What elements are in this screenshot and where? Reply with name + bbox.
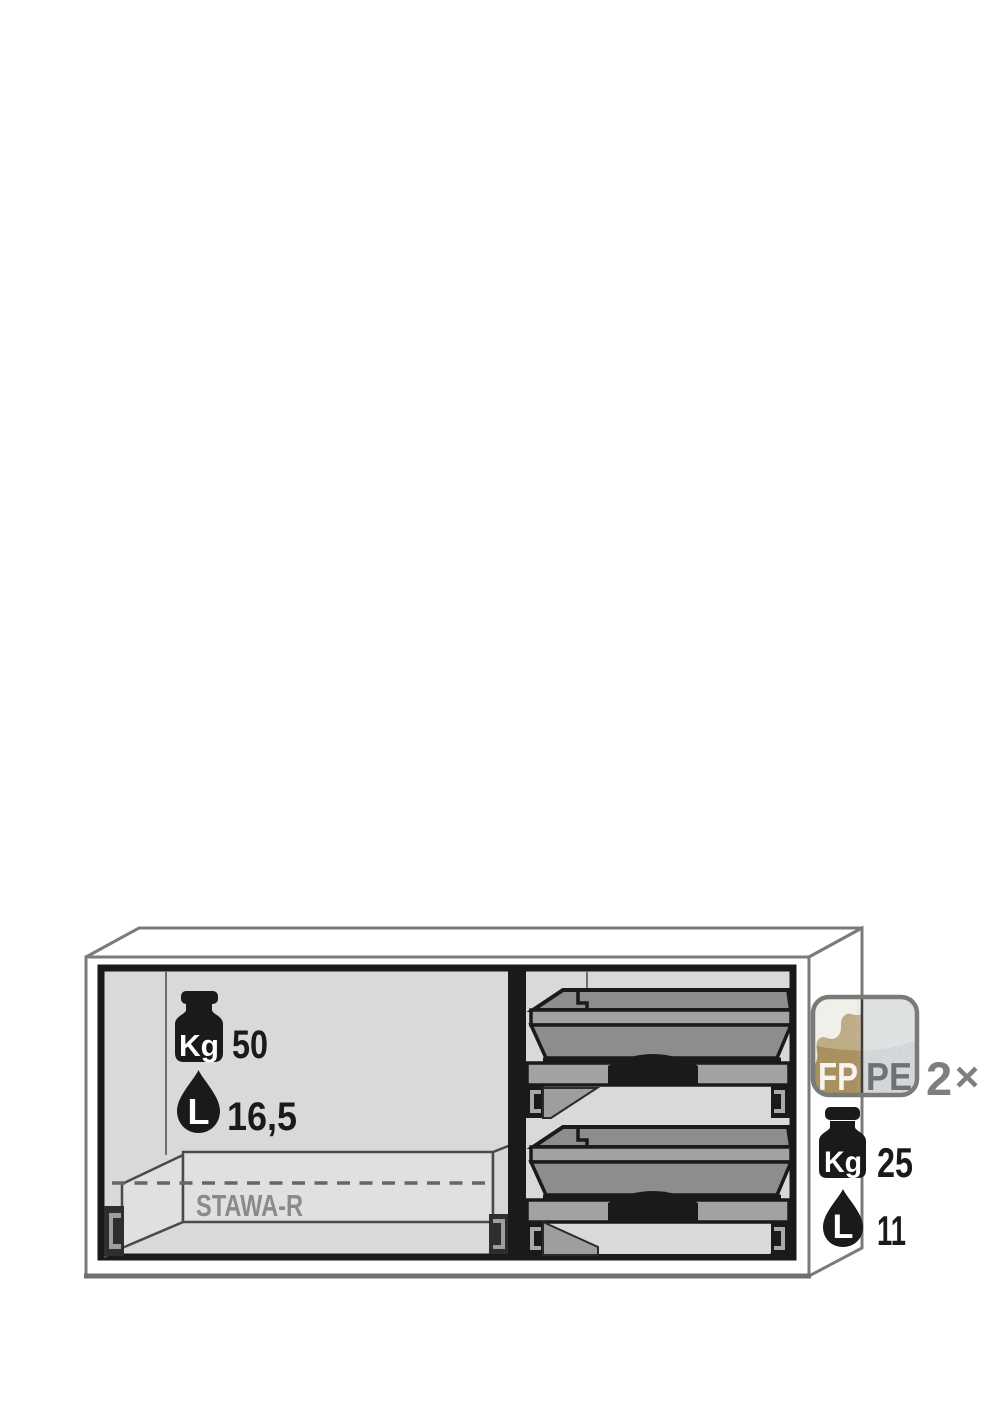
cabinet-top-face xyxy=(86,928,862,957)
badge-gloss xyxy=(813,997,917,1050)
badge-quantity: 2 xyxy=(926,1052,952,1105)
slide-bracket-left xyxy=(104,1206,124,1256)
weight-icon: Kg xyxy=(175,991,223,1063)
volume-value: 16,5 xyxy=(227,1095,297,1139)
fp-label: FP xyxy=(818,1056,858,1099)
drawer-drop-icon-label: L xyxy=(833,1208,854,1246)
drawer-max-load-value: 25 xyxy=(877,1139,913,1186)
fp-pe-badge: FP PE xyxy=(813,997,917,1099)
drop-icon-label: L xyxy=(188,1091,210,1132)
pe-label: PE xyxy=(866,1056,912,1099)
drawer-volume-value: 11 xyxy=(877,1207,906,1254)
max-load-value: 50 xyxy=(232,1023,268,1067)
drawer-weight-icon-label: Kg xyxy=(824,1146,862,1179)
times-icon: × xyxy=(955,1053,980,1100)
slide-bracket-right xyxy=(489,1214,509,1254)
tray-label: STAWA-R xyxy=(196,1188,303,1223)
weight-icon-label: Kg xyxy=(179,1028,219,1063)
cabinet-diagram-page: STAWA-R Kg 50 L 16,5 xyxy=(0,0,1004,1419)
drawer-weight-icon: Kg xyxy=(819,1107,866,1179)
safety-cabinet-diagram: STAWA-R Kg 50 L 16,5 xyxy=(0,0,1004,1419)
compartment-divider xyxy=(508,968,526,1257)
